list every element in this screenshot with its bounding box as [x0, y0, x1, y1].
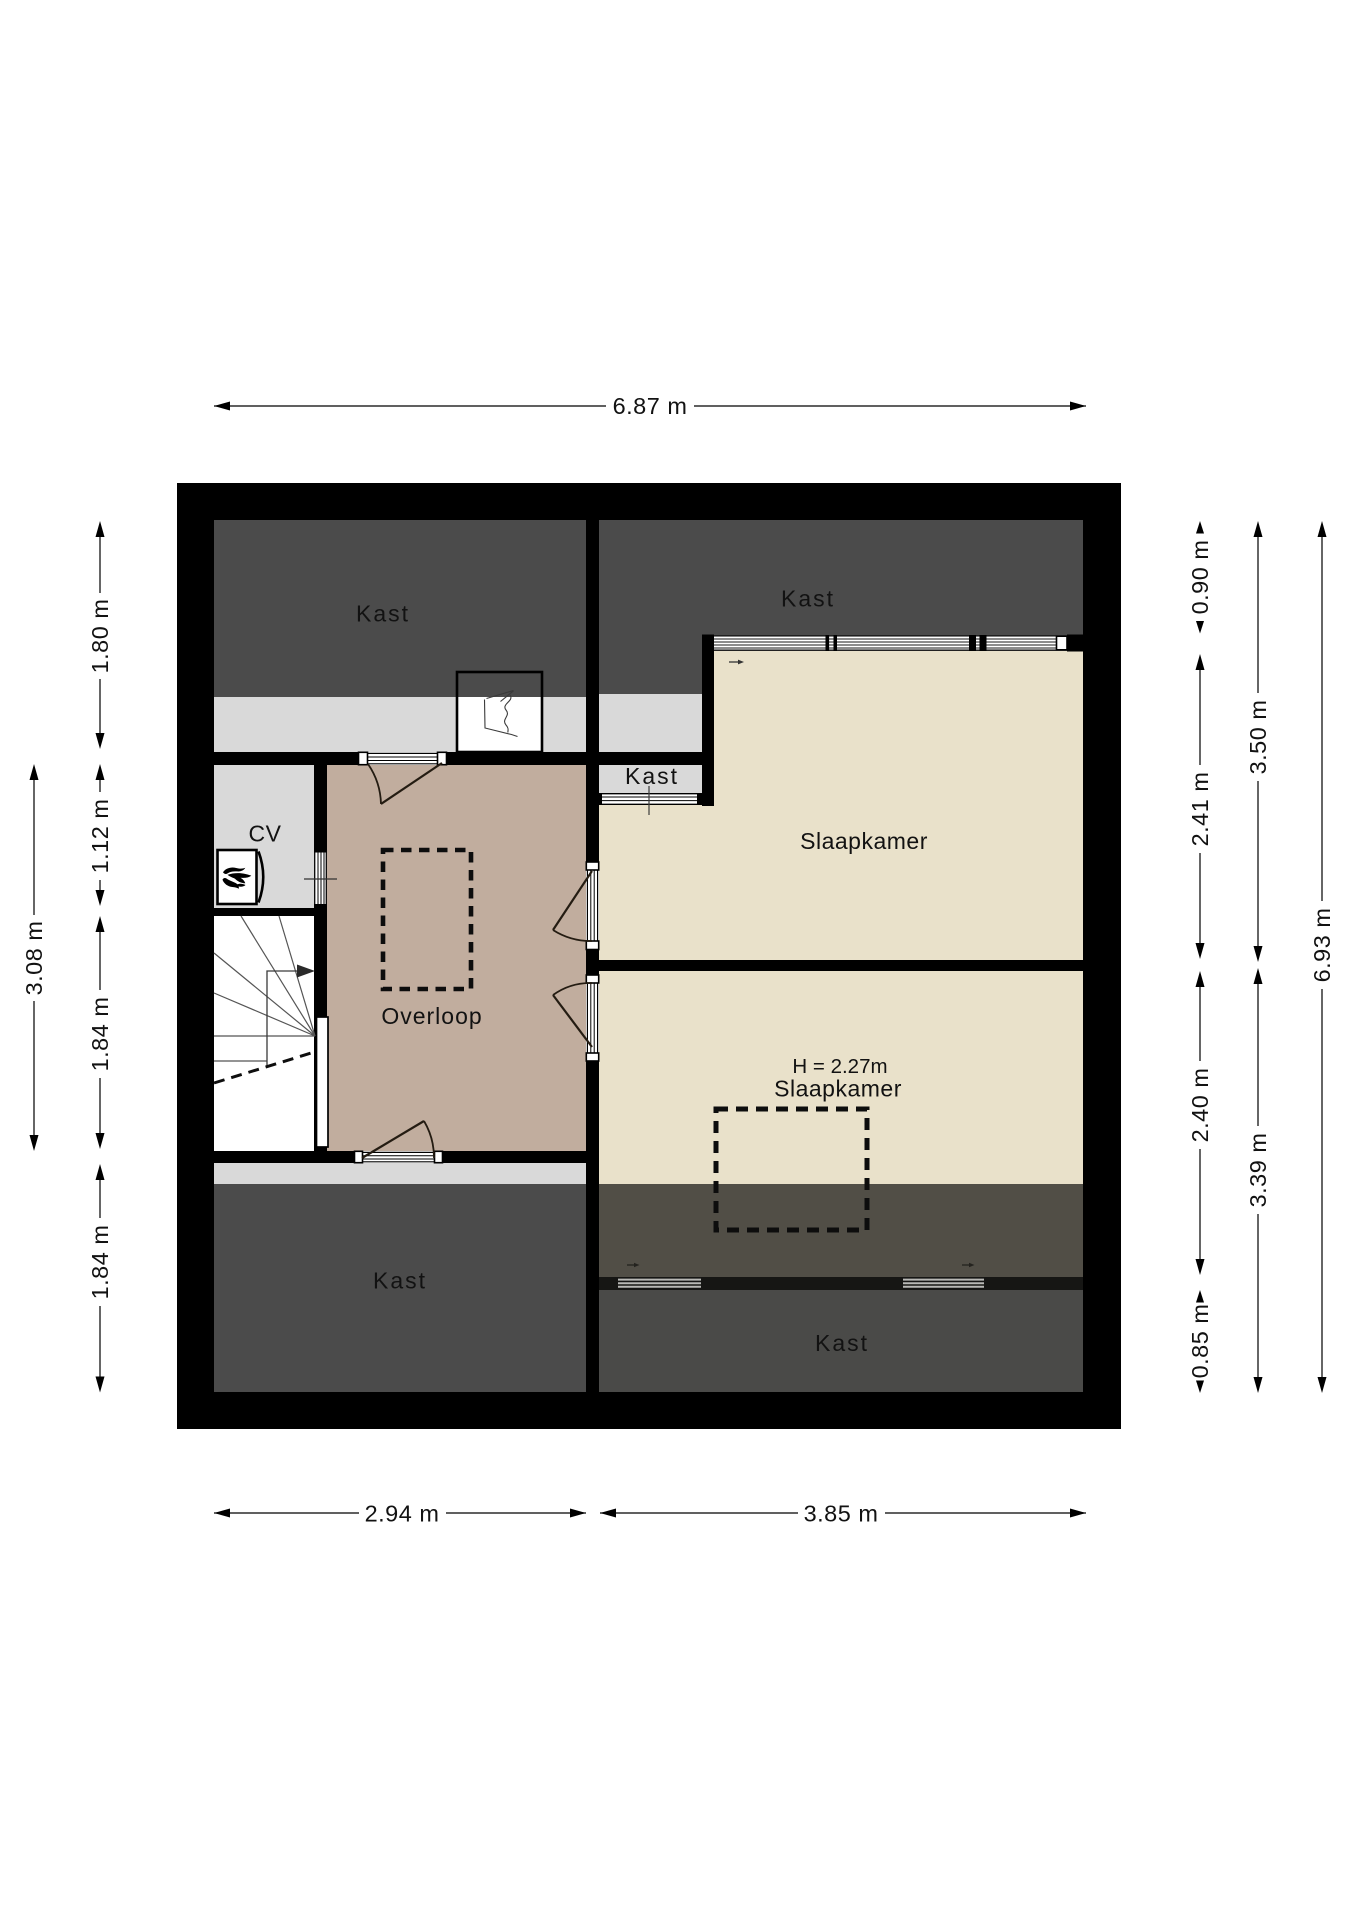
svg-text:0.90 m: 0.90 m [1187, 540, 1213, 615]
svg-text:1.84 m: 1.84 m [87, 1225, 113, 1300]
svg-text:Kast: Kast [815, 1330, 869, 1356]
svg-text:1.84 m: 1.84 m [87, 997, 113, 1072]
svg-text:Overloop: Overloop [381, 1003, 482, 1029]
svg-text:Kast: Kast [625, 763, 679, 789]
svg-text:3.85 m: 3.85 m [804, 1501, 879, 1527]
svg-text:6.93 m: 6.93 m [1309, 908, 1335, 983]
svg-text:3.50 m: 3.50 m [1245, 700, 1271, 775]
svg-text:2.41 m: 2.41 m [1187, 772, 1213, 847]
svg-text:0.85 m: 0.85 m [1187, 1304, 1213, 1379]
svg-text:Slaapkamer: Slaapkamer [774, 1076, 902, 1102]
svg-text:6.87 m: 6.87 m [613, 393, 688, 419]
svg-text:1.80 m: 1.80 m [87, 599, 113, 674]
svg-text:CV: CV [249, 821, 282, 847]
svg-text:Kast: Kast [373, 1268, 427, 1294]
svg-text:2.94 m: 2.94 m [365, 1501, 440, 1527]
svg-text:Kast: Kast [356, 601, 410, 627]
svg-text:3.08 m: 3.08 m [21, 921, 47, 996]
svg-text:3.39 m: 3.39 m [1245, 1133, 1271, 1208]
svg-text:2.40 m: 2.40 m [1187, 1068, 1213, 1143]
svg-text:Kast: Kast [781, 586, 835, 612]
svg-text:1.12 m: 1.12 m [87, 799, 113, 874]
svg-text:Slaapkamer: Slaapkamer [800, 828, 928, 854]
